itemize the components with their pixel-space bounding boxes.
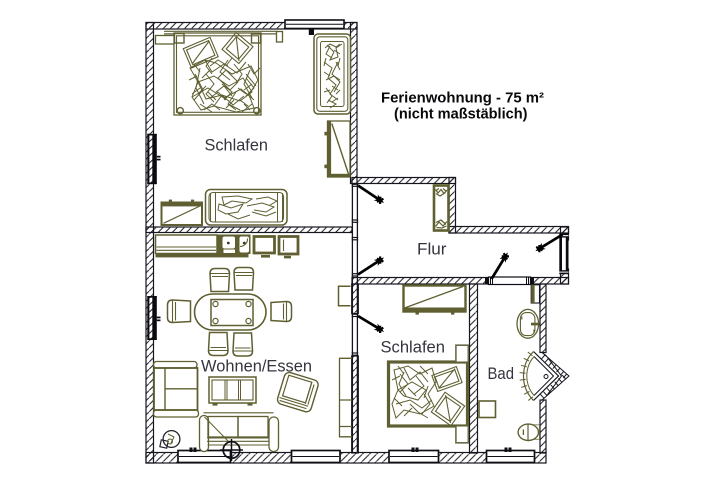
svg-text:Bad: Bad xyxy=(488,364,515,383)
svg-text:(nicht maßstäblich): (nicht maßstäblich) xyxy=(394,106,528,122)
svg-text:Wohnen/Essen: Wohnen/Essen xyxy=(201,357,312,376)
svg-text:Schlafen: Schlafen xyxy=(205,136,269,155)
svg-text:Ferienwohnung - 75 m²: Ferienwohnung - 75 m² xyxy=(381,90,544,106)
svg-text:Flur: Flur xyxy=(417,240,447,259)
svg-text:Schlafen: Schlafen xyxy=(381,338,446,357)
